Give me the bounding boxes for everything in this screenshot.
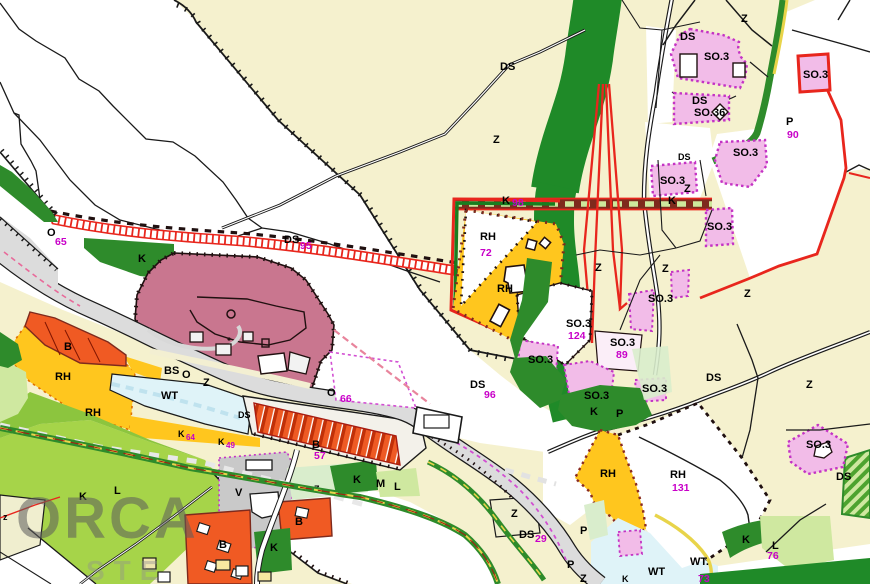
svg-text:B: B [295,516,303,528]
svg-text:RH: RH [480,231,496,243]
svg-text:64: 64 [186,433,195,442]
svg-text:DS: DS [692,95,707,107]
svg-text:SO.3: SO.3 [566,318,591,330]
svg-text:DS: DS [678,152,691,162]
svg-text:124: 124 [568,330,586,342]
svg-text:96: 96 [484,389,496,401]
svg-text:SO.36: SO.36 [694,107,725,119]
svg-text:K: K [668,195,676,207]
svg-text:SO.3: SO.3 [584,390,609,402]
svg-text:B: B [64,341,72,353]
svg-text:Z: Z [580,573,587,584]
svg-text:K: K [270,542,278,554]
svg-text:WT: WT [161,390,178,402]
svg-text:DS: DS [500,61,515,73]
svg-text:K: K [742,534,750,546]
svg-text:SO.3: SO.3 [610,337,635,349]
svg-text:WT.: WT. [690,556,709,568]
svg-text:K: K [590,406,598,418]
svg-text:98: 98 [512,197,524,209]
svg-text:BS: BS [164,365,179,377]
svg-text:L: L [394,481,401,493]
svg-text:K: K [622,574,629,584]
svg-text:P: P [567,559,574,571]
svg-text:O: O [182,369,191,381]
svg-text:49: 49 [226,441,235,450]
svg-text:DS: DS [284,234,299,246]
svg-text:89: 89 [616,349,628,361]
svg-text:RH: RH [497,283,513,295]
svg-text:SO.3: SO.3 [806,439,831,451]
svg-text:K: K [178,429,185,439]
svg-text:29: 29 [535,533,547,545]
svg-text:z: z [3,512,8,522]
svg-text:Z: Z [684,183,691,195]
svg-text:DS: DS [836,471,851,483]
svg-text:65: 65 [55,236,67,248]
svg-text:SO.3: SO.3 [648,293,673,305]
svg-text:P: P [786,116,793,128]
svg-text:DS: DS [470,379,485,391]
svg-text:M: M [376,478,385,490]
svg-text:K: K [218,437,225,447]
svg-text:WT: WT [648,566,665,578]
svg-text:B: B [219,539,227,551]
svg-text:72: 72 [480,247,492,259]
svg-text:SO.3: SO.3 [707,221,732,233]
svg-text:Z: Z [203,377,210,389]
svg-text:57: 57 [314,450,326,462]
svg-text:P: P [580,525,587,537]
svg-text:ORCA: ORCA [16,486,199,551]
svg-text:SO.3: SO.3 [704,51,729,63]
svg-text:Z: Z [744,288,751,300]
svg-text:90: 90 [787,129,799,141]
svg-text:66: 66 [340,393,352,405]
svg-text:SO.3: SO.3 [642,383,667,395]
svg-text:DS: DS [238,410,251,420]
svg-text:RH: RH [670,469,686,481]
svg-text:K: K [138,253,146,265]
svg-text:RH: RH [600,468,616,480]
svg-text:DS: DS [519,529,534,541]
svg-text:SO.3: SO.3 [528,354,553,366]
svg-text:Z: Z [595,262,602,274]
svg-text:SO.3: SO.3 [660,175,685,187]
svg-text:95: 95 [300,240,312,252]
svg-text:Z: Z [662,263,669,275]
svg-text:K: K [502,195,510,207]
svg-text:Z: Z [741,13,748,25]
svg-text:Z: Z [493,134,500,146]
svg-text:Z: Z [511,508,518,520]
svg-text:V: V [235,487,243,499]
svg-text:SO.3: SO.3 [803,69,828,81]
svg-text:Z: Z [806,379,813,391]
svg-text:76: 76 [767,550,779,562]
svg-text:RH: RH [85,407,101,419]
svg-text:DS: DS [680,31,695,43]
svg-text:STE: STE [86,555,167,584]
svg-text:O: O [327,387,336,399]
svg-text:131: 131 [672,482,690,494]
svg-text:RH: RH [55,371,71,383]
svg-text:73: 73 [698,573,710,584]
svg-text:DS: DS [706,372,721,384]
svg-text:SO.3: SO.3 [733,147,758,159]
svg-text:K: K [353,474,361,486]
svg-text:P: P [616,408,623,420]
